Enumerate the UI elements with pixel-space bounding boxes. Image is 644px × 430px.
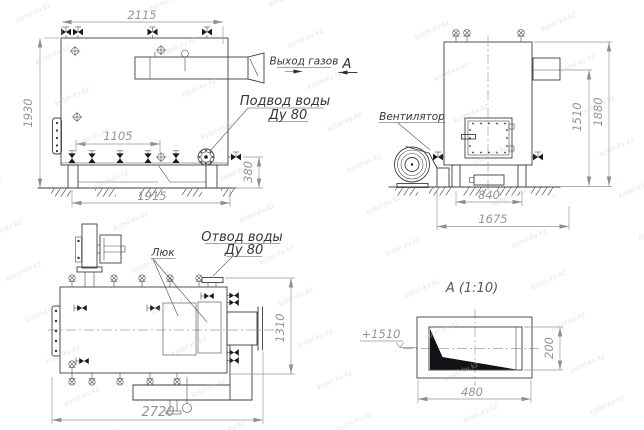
boiler-drawing: kotel-kv.kz xyxy=(0,0,644,430)
watermark-layer xyxy=(0,0,644,430)
drawing-canvas: kotel-kv.kz xyxy=(0,0,644,430)
